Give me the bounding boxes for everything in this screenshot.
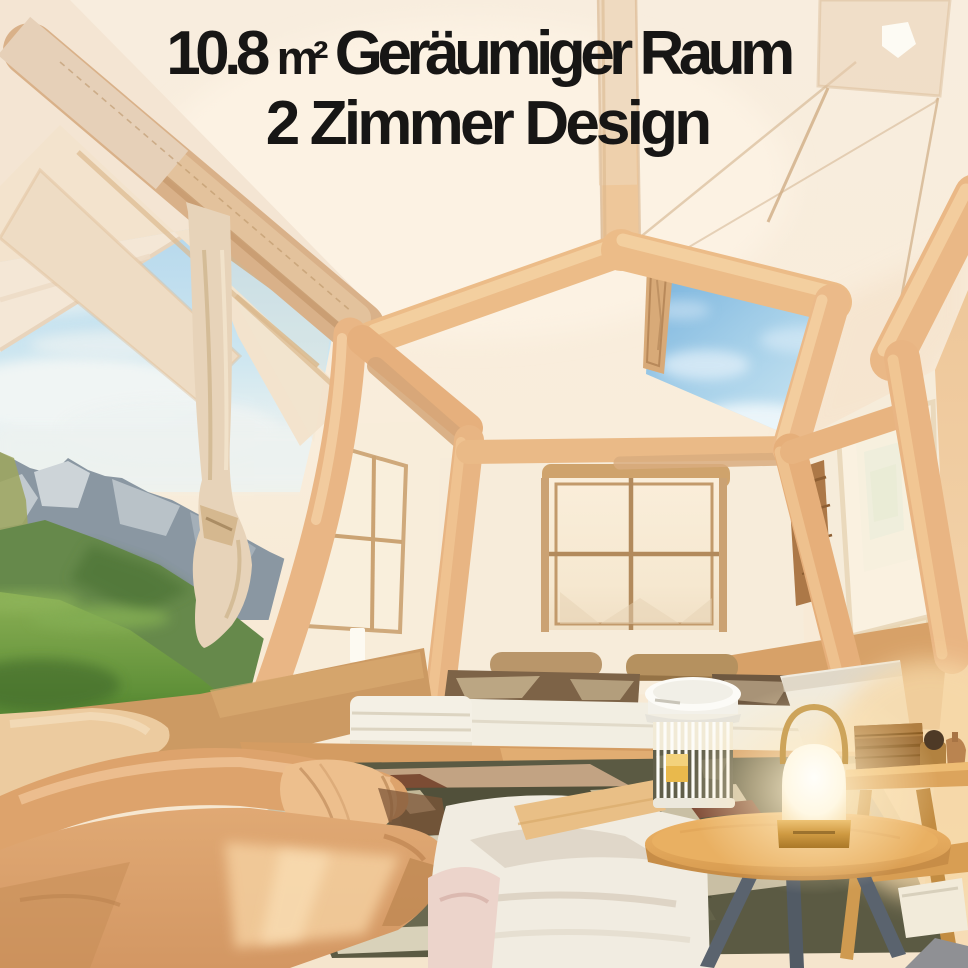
svg-text:2 Zimmer Design: 2 Zimmer Design <box>266 89 710 158</box>
svg-text:10.8 m² Geräumiger Raum: 10.8 m² Geräumiger Raum <box>166 19 792 88</box>
